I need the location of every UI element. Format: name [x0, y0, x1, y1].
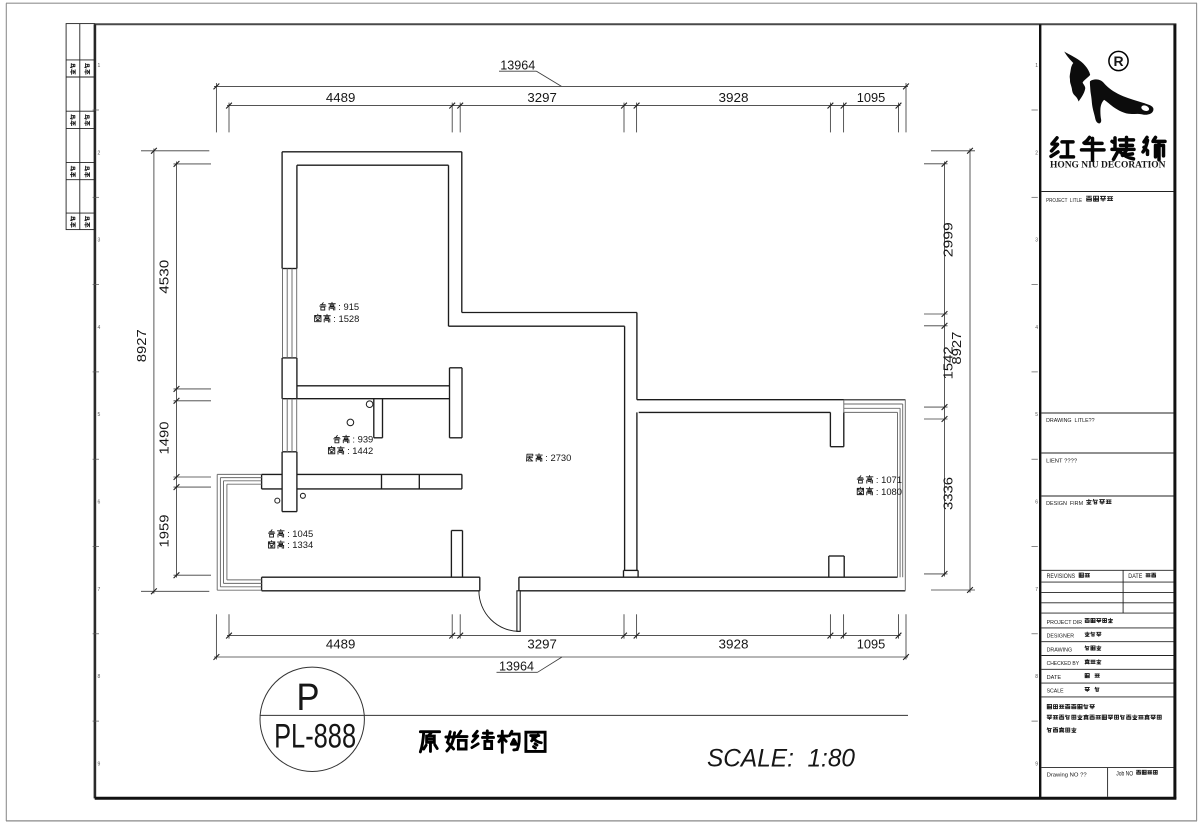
svg-text:1095: 1095	[857, 637, 886, 652]
svg-text:LIENT ????: LIENT ????	[1046, 458, 1078, 464]
svg-text:1959: 1959	[156, 515, 171, 548]
svg-text:Job NO: Job NO	[1116, 771, 1133, 777]
svg-text:DRAWING LITLE??: DRAWING LITLE??	[1046, 418, 1095, 424]
svg-text:: 1442: : 1442	[347, 445, 373, 456]
svg-text:6: 6	[1035, 500, 1038, 506]
svg-text:8927: 8927	[134, 329, 149, 362]
svg-text:: 2730: : 2730	[545, 452, 571, 463]
svg-text:DESIGNER: DESIGNER	[1047, 634, 1075, 640]
svg-text:: 1334: : 1334	[287, 539, 313, 550]
svg-text:PROJECT LITLE: PROJECT LITLE	[1046, 198, 1082, 204]
svg-text:DATE: DATE	[1128, 574, 1142, 580]
svg-text:9: 9	[98, 761, 101, 767]
svg-text:REVISIONS: REVISIONS	[1047, 574, 1076, 580]
svg-text:4489: 4489	[326, 637, 355, 652]
svg-text:: 1080: : 1080	[876, 486, 902, 497]
svg-text:6: 6	[98, 500, 101, 506]
svg-text:2: 2	[98, 150, 101, 156]
svg-text:7: 7	[1035, 587, 1038, 593]
svg-text:8: 8	[1035, 674, 1038, 680]
svg-text:4489: 4489	[326, 90, 355, 105]
svg-text:8927: 8927	[949, 332, 964, 365]
svg-text:1: 1	[1035, 63, 1038, 69]
svg-text:5: 5	[98, 412, 101, 418]
svg-text:1: 1	[98, 63, 101, 69]
svg-text:4530: 4530	[156, 260, 171, 294]
svg-text:3: 3	[1035, 238, 1038, 244]
svg-text:DRAWING: DRAWING	[1047, 647, 1073, 653]
svg-text:: 939: : 939	[352, 434, 373, 445]
svg-text:1490: 1490	[156, 422, 171, 455]
svg-text:9: 9	[1035, 761, 1038, 767]
svg-text:2: 2	[1035, 150, 1038, 156]
svg-text:HONG NIU DECORATION: HONG NIU DECORATION	[1050, 160, 1166, 171]
svg-text:3928: 3928	[719, 637, 749, 652]
svg-text:: 1528: : 1528	[333, 313, 359, 324]
svg-text:5: 5	[1035, 412, 1038, 418]
svg-text:: 1045: : 1045	[287, 528, 313, 539]
svg-text:R: R	[1113, 53, 1123, 69]
svg-text:3297: 3297	[527, 90, 556, 105]
svg-text:13964: 13964	[499, 659, 534, 674]
svg-text:: 1071: : 1071	[876, 474, 902, 485]
svg-text:4: 4	[1035, 325, 1038, 331]
svg-text:DESIGN FIRM: DESIGN FIRM	[1046, 501, 1083, 507]
svg-text:2999: 2999	[941, 222, 956, 257]
svg-text:3: 3	[98, 238, 101, 244]
svg-text:13964: 13964	[500, 58, 535, 73]
svg-text:PL-888: PL-888	[274, 718, 356, 756]
svg-text:1095: 1095	[857, 90, 886, 105]
svg-text:8: 8	[98, 674, 101, 680]
svg-text:3336: 3336	[941, 477, 956, 510]
svg-text:7: 7	[98, 587, 101, 593]
svg-text:3297: 3297	[527, 637, 556, 652]
svg-text:3928: 3928	[719, 90, 749, 105]
svg-text:CHECKED BY: CHECKED BY	[1047, 661, 1080, 667]
svg-text:Drawing NO ??: Drawing NO ??	[1047, 773, 1088, 779]
svg-text:: 915: : 915	[338, 301, 359, 312]
svg-text:4: 4	[98, 325, 101, 331]
svg-text:SCALE: 1:80: SCALE: 1:80	[707, 745, 855, 773]
svg-text:SCALE: SCALE	[1047, 689, 1064, 695]
svg-text:PROJECT DIR: PROJECT DIR	[1047, 620, 1083, 626]
svg-text:P: P	[297, 677, 320, 719]
svg-text:DATE: DATE	[1047, 675, 1062, 681]
